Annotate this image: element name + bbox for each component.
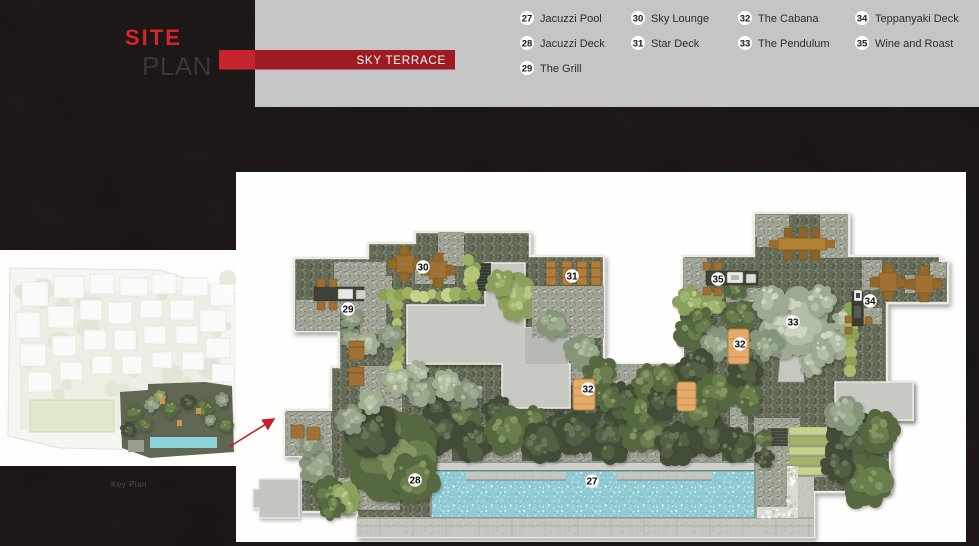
svg-text:30: 30 — [633, 14, 644, 25]
svg-text:27: 27 — [522, 14, 533, 25]
svg-text:Sky Lounge: Sky Lounge — [651, 13, 709, 25]
svg-text:33: 33 — [740, 39, 751, 50]
svg-text:The Grill: The Grill — [540, 63, 582, 75]
svg-text:28: 28 — [409, 476, 421, 487]
svg-text:32: 32 — [734, 340, 746, 351]
svg-text:Teppanyaki Deck: Teppanyaki Deck — [875, 13, 959, 25]
svg-text:29: 29 — [342, 305, 354, 316]
svg-text:Jacuzzi Deck: Jacuzzi Deck — [540, 38, 605, 50]
svg-text:Star Deck: Star Deck — [651, 38, 700, 50]
svg-text:33: 33 — [787, 318, 799, 329]
svg-text:35: 35 — [857, 39, 868, 50]
svg-text:32: 32 — [740, 14, 751, 25]
svg-text:29: 29 — [522, 64, 533, 75]
svg-text:35: 35 — [712, 275, 724, 286]
svg-text:27: 27 — [586, 477, 598, 488]
svg-text:32: 32 — [582, 385, 594, 396]
svg-text:34: 34 — [864, 297, 876, 308]
svg-text:31: 31 — [566, 272, 578, 283]
svg-text:Wine and Roast: Wine and Roast — [875, 38, 953, 50]
svg-text:SKY TERRACE: SKY TERRACE — [356, 55, 446, 67]
svg-text:34: 34 — [857, 14, 868, 25]
svg-text:SITE: SITE — [125, 25, 182, 50]
svg-text:PLAN: PLAN — [142, 51, 212, 81]
svg-text:31: 31 — [633, 39, 644, 50]
svg-text:Jacuzzi Pool: Jacuzzi Pool — [540, 13, 602, 25]
svg-text:Key Plan: Key Plan — [111, 480, 147, 489]
svg-text:The Cabana: The Cabana — [758, 13, 819, 25]
svg-text:28: 28 — [522, 39, 533, 50]
svg-text:30: 30 — [417, 263, 429, 274]
svg-text:The Pendulum: The Pendulum — [758, 38, 830, 50]
